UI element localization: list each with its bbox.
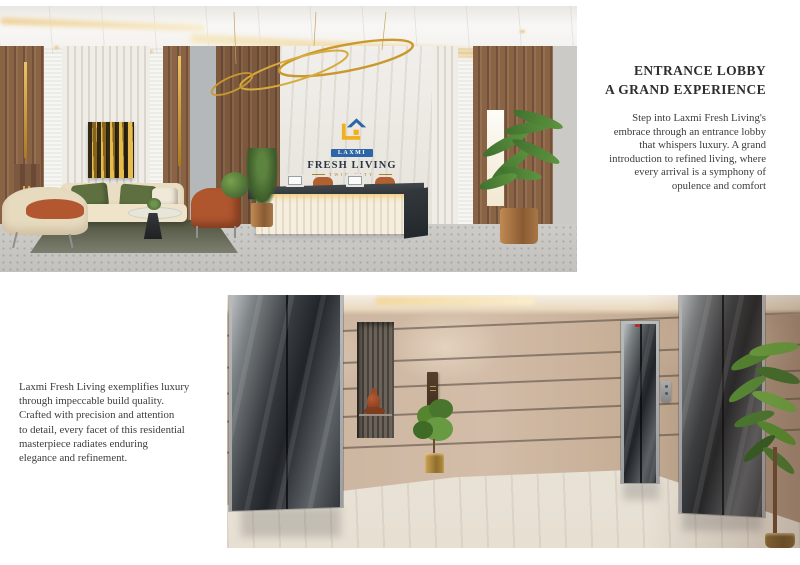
niche-shelf <box>359 414 392 416</box>
logo-brand-ribbon: LAXMI <box>331 149 373 157</box>
quality-text-block: Laxmi Fresh Living exemplifies luxury th… <box>19 380 219 465</box>
gold-accent-strip <box>24 62 27 158</box>
brand-logo: LAXMI FRESH LIVING TWIN CITY <box>300 116 404 182</box>
gold-planter <box>425 453 444 473</box>
abstract-wall-art <box>88 122 134 178</box>
elevator-indicator-light <box>635 324 640 327</box>
tree-foliage <box>413 421 433 439</box>
chair-leg <box>234 226 236 238</box>
hero-title: ENTRANCE LOBBY A GRAND EXPERIENCE <box>536 62 766 99</box>
sign-text-line <box>430 390 436 391</box>
door-reflection <box>232 295 340 511</box>
entrance-lobby-image: LAXMI FRESH LIVING TWIN CITY <box>0 6 577 272</box>
elevator-doors <box>232 295 340 511</box>
house-logo-icon <box>337 116 367 141</box>
logo-name: FRESH LIVING <box>300 160 404 171</box>
desk-monitor <box>346 174 364 187</box>
cove-light <box>0 17 205 31</box>
desk-monitor <box>286 174 304 187</box>
cove-light <box>375 297 535 305</box>
gold-accent-strip <box>178 56 181 166</box>
copper-planter <box>251 203 273 227</box>
accent-chair-left-seat <box>26 199 84 219</box>
table-plant <box>147 198 161 210</box>
gold-chandelier <box>196 12 421 104</box>
stone-panel <box>458 46 473 228</box>
wall-niche <box>357 322 394 438</box>
potted-bush <box>221 172 249 198</box>
reception-desk-side <box>404 187 428 238</box>
hero-body: Step into Laxmi Fresh Living's embrace t… <box>536 112 766 194</box>
spotlight <box>520 30 525 33</box>
fluted-marble-wall <box>432 46 458 228</box>
tall-plant <box>246 148 278 208</box>
copper-planter <box>500 208 538 244</box>
brochure-page: LAXMI FRESH LIVING TWIN CITY <box>0 0 800 565</box>
floor-reflection <box>241 507 341 537</box>
elevator-left <box>229 295 343 511</box>
reception-desk-front <box>256 194 410 234</box>
elevator-lobby-image <box>227 295 800 548</box>
wall-shadow-overlay <box>647 295 800 548</box>
chair-leg <box>196 226 198 238</box>
hero-text-block: ENTRANCE LOBBY A GRAND EXPERIENCE Step i… <box>536 62 766 194</box>
sign-text-line <box>430 386 436 387</box>
tree-foliage <box>429 399 453 419</box>
